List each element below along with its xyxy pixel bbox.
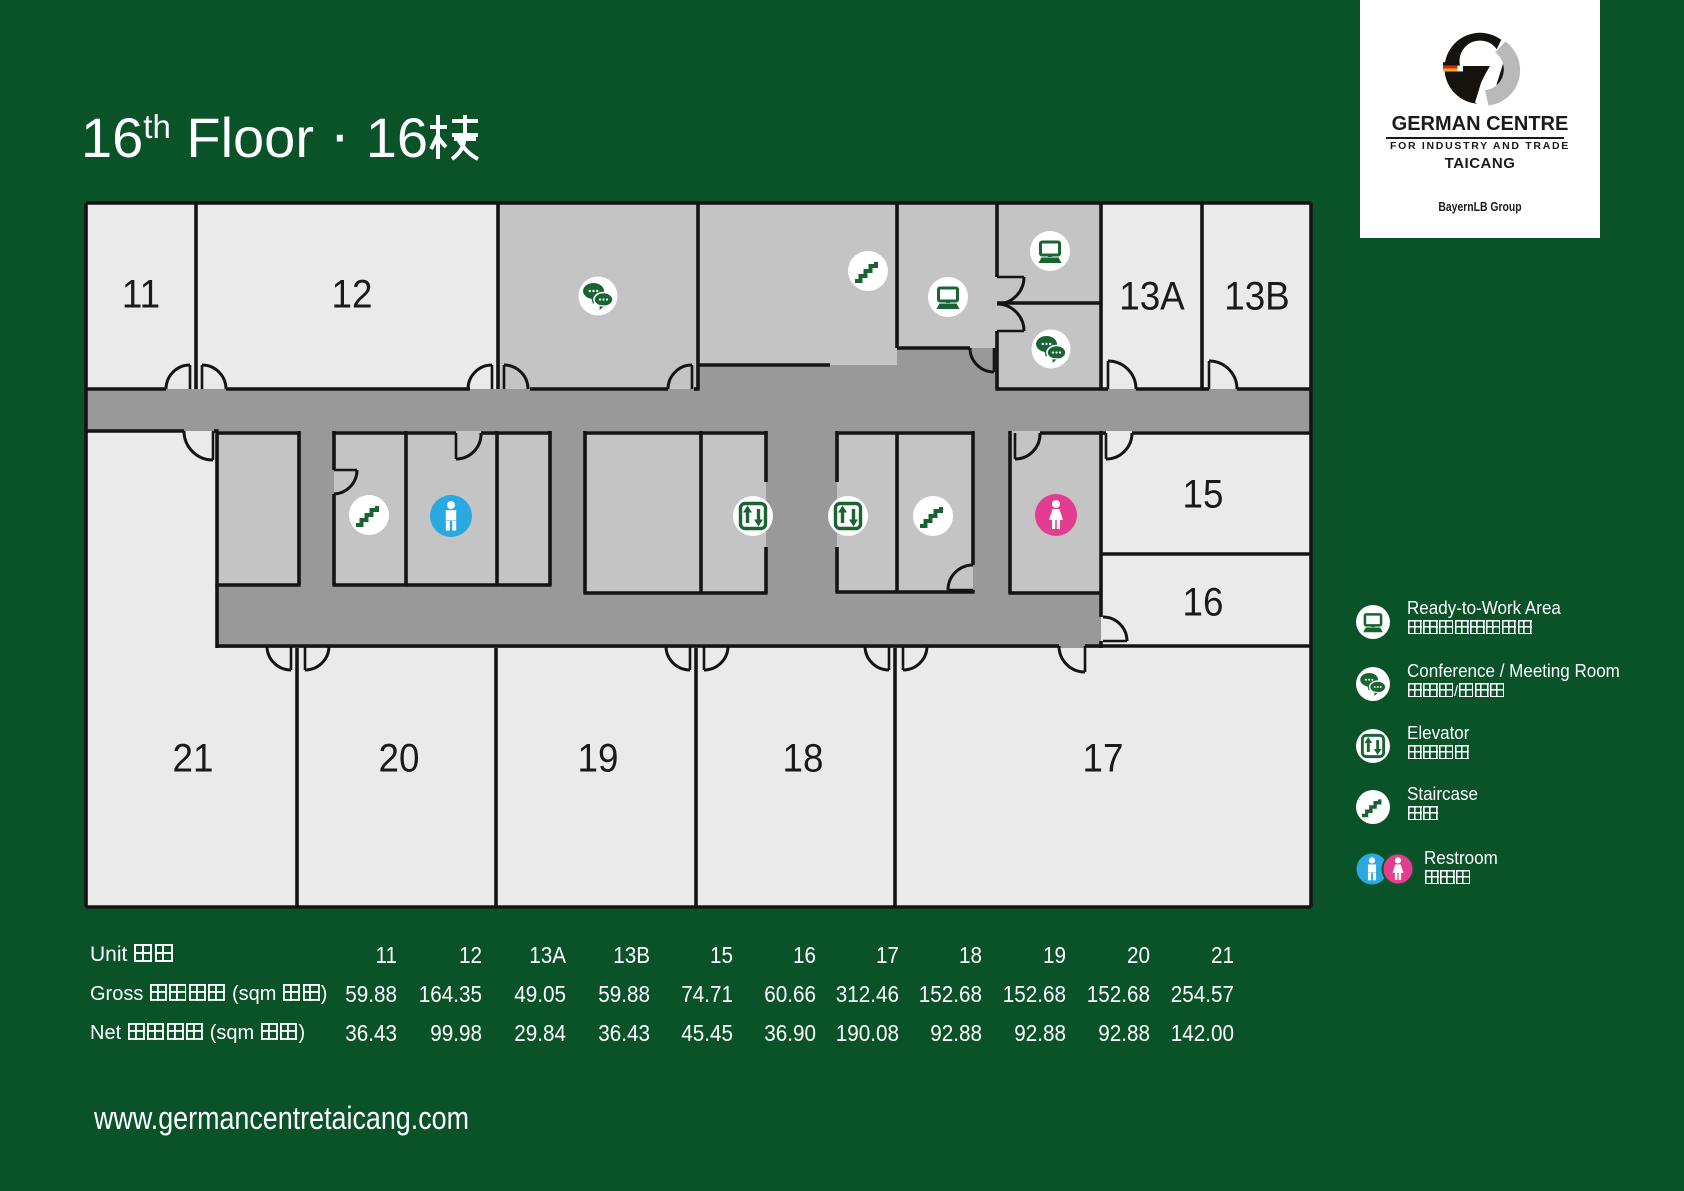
svg-text:17: 17 (1083, 736, 1124, 781)
svg-text:20: 20 (379, 736, 420, 781)
svg-text:21: 21 (173, 736, 214, 781)
svg-text:13B: 13B (1224, 274, 1289, 319)
svg-text:11: 11 (122, 272, 160, 317)
svg-text:18: 18 (783, 736, 824, 781)
svg-text:15: 15 (1183, 472, 1224, 517)
svg-text:12: 12 (332, 272, 373, 317)
svg-text:19: 19 (578, 736, 619, 781)
svg-text:13A: 13A (1119, 274, 1185, 319)
svg-text:16: 16 (1183, 580, 1224, 625)
